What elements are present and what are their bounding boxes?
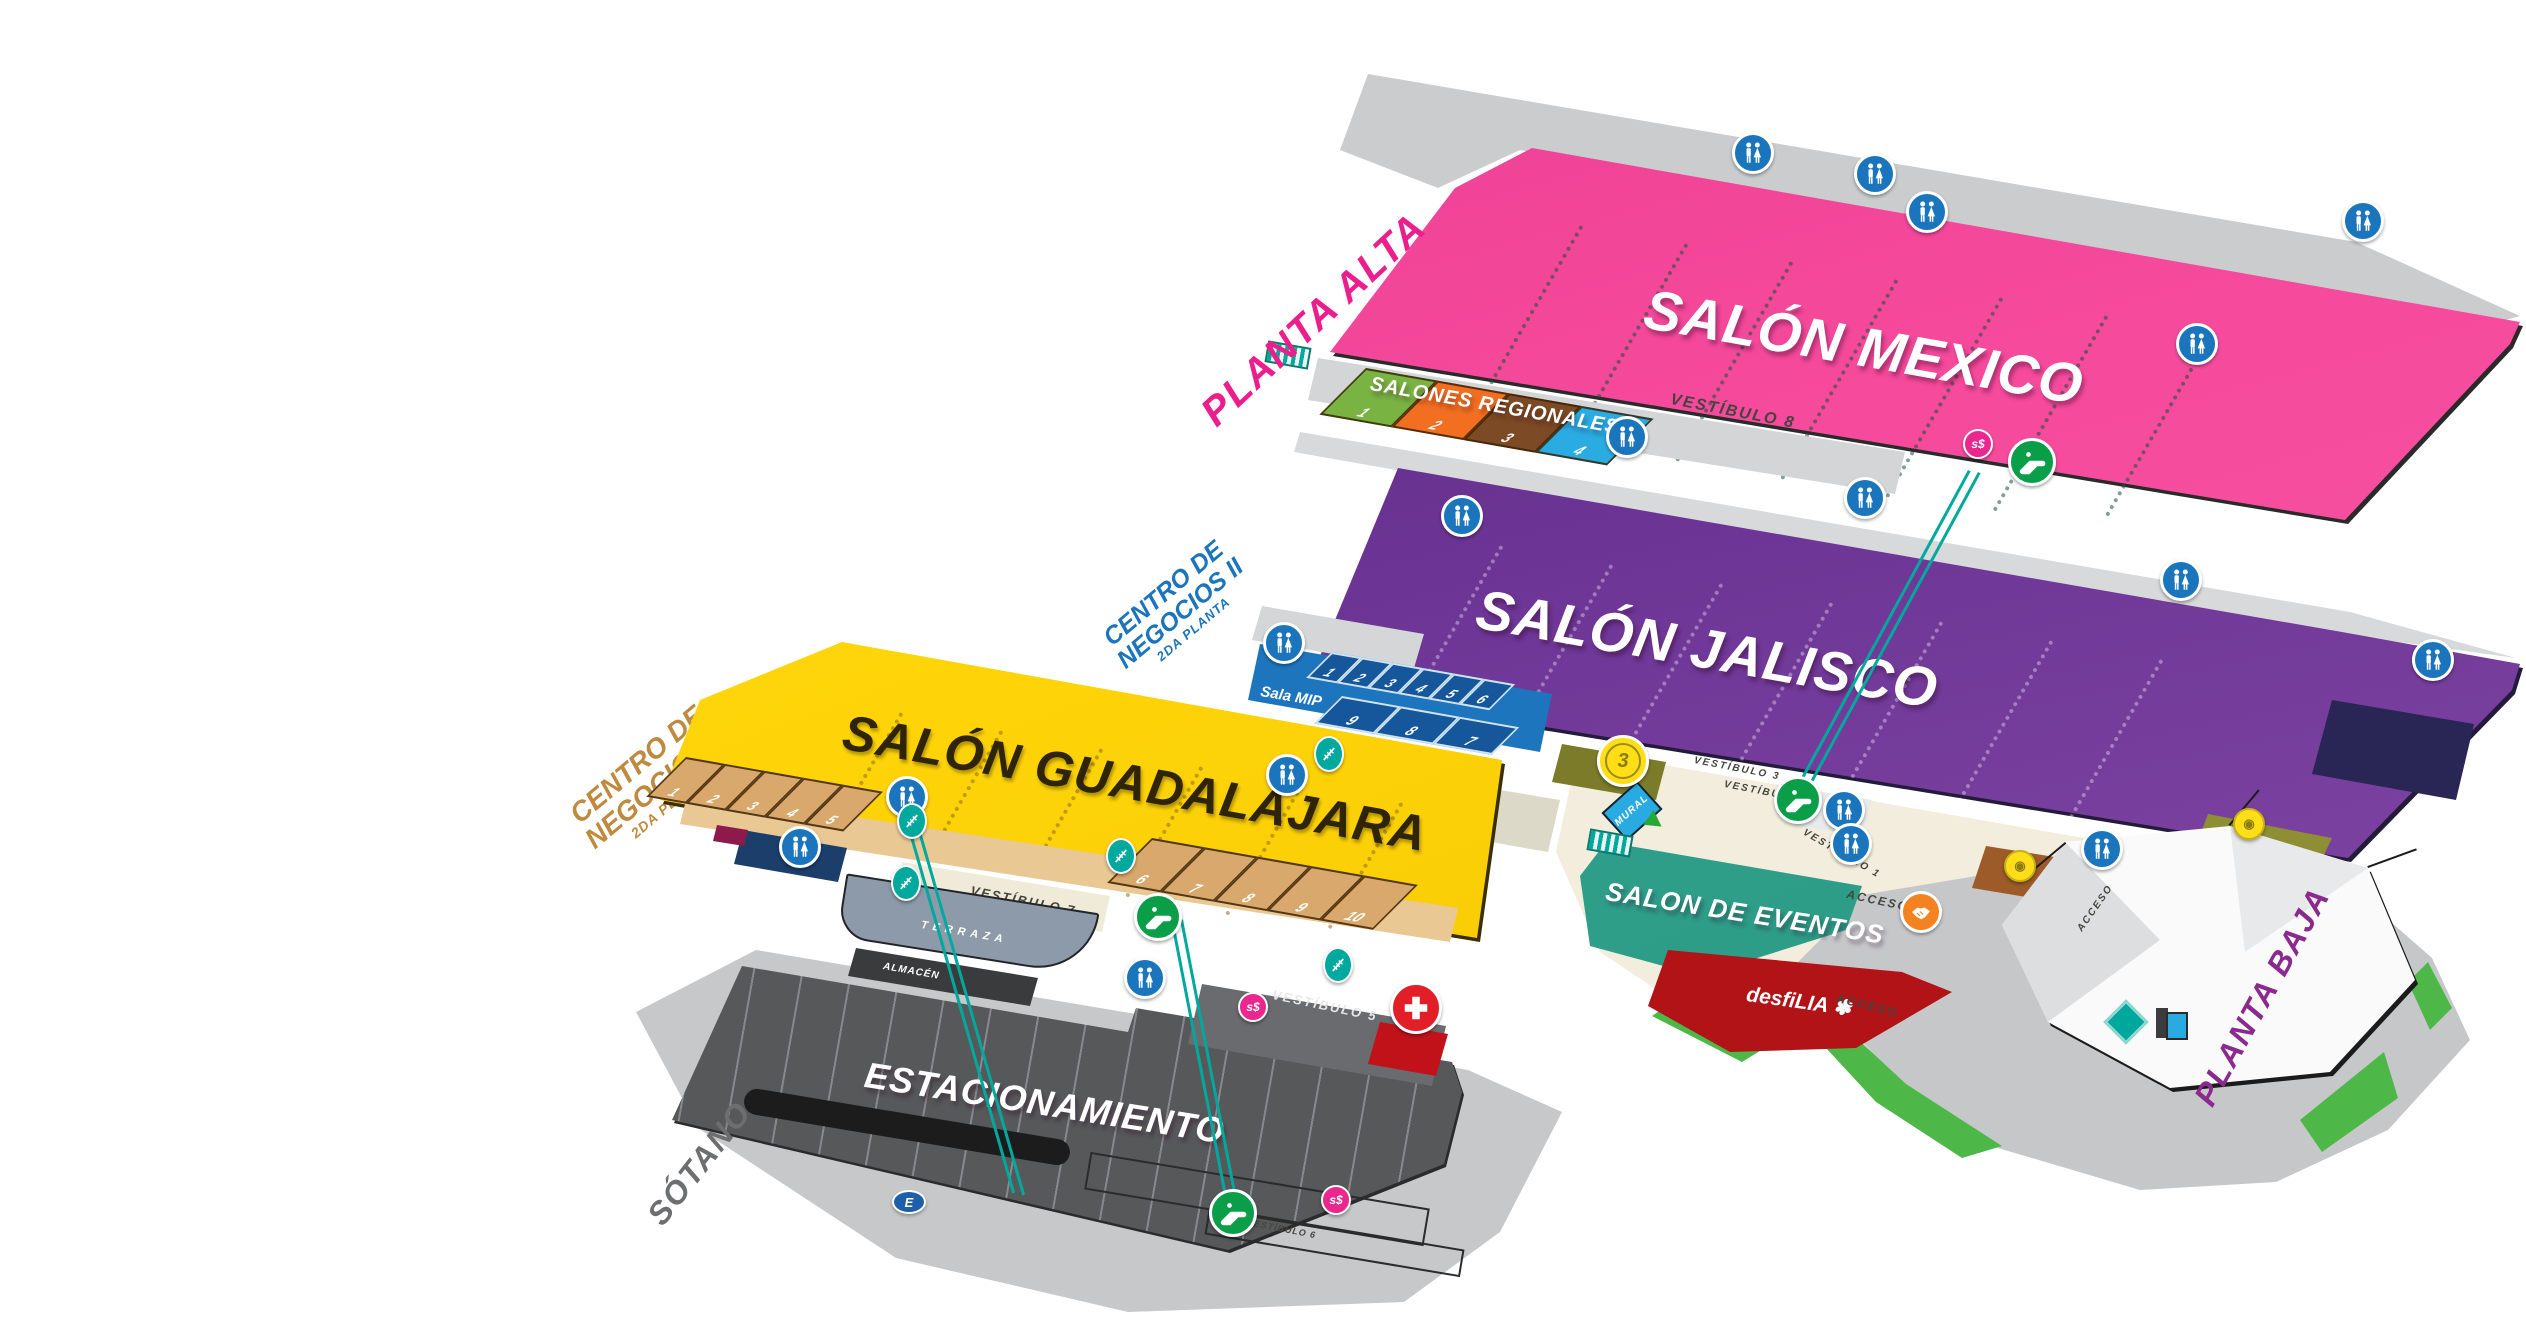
patio-khaki (0, 0, 2526, 1341)
tent-outline (3, 4, 2526, 1341)
acceso-label: ACCESO (2076, 883, 2116, 934)
terraza-area (837, 873, 1100, 976)
escalator-icon (1774, 776, 1822, 824)
restroom-icon (1441, 495, 1483, 537)
sala-mip-label: Sala MIP (1259, 684, 1323, 710)
salon-eventos-title: SALON DE EVENTOS (1604, 878, 1886, 949)
salon-jalisco-outline (3, 4, 2526, 1341)
mip-structure (0, 0, 2526, 1341)
vestibulo5-label: VESTÍBULO 5 (1271, 988, 1379, 1024)
guadalajara-navy-patch (0, 0, 2526, 1341)
guadalajara-maroon-patch (0, 0, 2526, 1341)
atm-icon: s$ (1963, 429, 1993, 459)
salon-jalisco-area (0, 0, 2526, 1341)
escalator-path (1170, 917, 1229, 1207)
stairs-strip-icon (1198, 724, 1245, 753)
plaza-walkway (0, 0, 2526, 1341)
estacionamiento-area (0, 0, 2526, 1341)
restroom-icon (1906, 191, 1948, 233)
restroom-icon (1263, 622, 1305, 664)
stairs-icon (1323, 947, 1353, 983)
almacen-band (0, 0, 2526, 1341)
escalator-icon (1209, 1189, 1257, 1237)
vestibulo8-label: VESTÍBULO 8 (1669, 392, 1797, 433)
salon-eventos-area (0, 0, 2526, 1341)
planta-baja-floor (0, 0, 2526, 1341)
centro-negocios-jalisco-label: CENTRO DE NEGOCIOS II 2DA PLANTA (1095, 533, 1257, 684)
sotano-label: SÓTANO (642, 1095, 759, 1231)
roof-corridor (0, 0, 2526, 1341)
sotano-apron (0, 0, 2526, 1341)
tent-guy-wire (2367, 848, 2417, 868)
lawn (0, 0, 2526, 1341)
vestibulo8-band (0, 0, 2526, 1341)
escalator-icon (1134, 893, 1182, 941)
salon-mexico-title: SALÓN MEXICO (1640, 280, 2088, 415)
vestibulo7-band (0, 0, 2526, 1341)
vestibulo4-band (0, 0, 2526, 1341)
salon-mexico-area (0, 0, 2526, 1341)
salon-guadalajara-area (0, 0, 2526, 1341)
fountain (2103, 999, 2148, 1044)
salon-mexico-outline (3, 4, 2526, 1341)
stairs-icon (1314, 736, 1344, 772)
restroom-icon (2412, 639, 2454, 681)
restroom-icon (2081, 828, 2123, 870)
lawn (0, 0, 2526, 1341)
seal-badge-icon: ◉ (2004, 850, 2036, 882)
restroom-icon (1830, 823, 1872, 865)
stairs-icon (891, 865, 921, 901)
estacionamiento-outline (2, 3, 2526, 1341)
parking-entrance-marker: E (892, 1190, 926, 1214)
guadalajara-corridor (0, 0, 2526, 1341)
lawn (0, 0, 2526, 1341)
restroom-icon (1266, 754, 1308, 796)
jalisco-navy-strip (0, 0, 2526, 1341)
first-aid-icon (1390, 982, 1442, 1034)
atm-icon: s$ (1321, 1185, 1351, 1215)
planta-baja-label: PLANTA BAJA (2189, 882, 2337, 1112)
guadalajara-rooms-1-5: 1 2 3 4 5 (646, 757, 883, 831)
vestibulo3-badge: 3 (1597, 735, 1649, 787)
patio-olive (0, 0, 2526, 1341)
almacen-label: ALMACÉN (882, 962, 940, 982)
vestibulo5-band (0, 0, 2526, 1341)
expo-floorplan-map: SALÓN MEXICO VESTÍBULO 8 1 2 3 4 SALONES… (0, 0, 2526, 1341)
tent-canopy (0, 0, 2526, 1341)
atm-icon: s$ (1238, 992, 1268, 1022)
restroom-icon (1732, 132, 1774, 174)
stairs-icon (897, 803, 927, 839)
tent-facet (0, 0, 2526, 1341)
patio-brown (0, 0, 2526, 1341)
restroom-icon (1606, 416, 1648, 458)
restroom-icon (2342, 200, 2384, 242)
desfilia-area (0, 0, 2526, 1341)
lawn (0, 0, 2526, 1341)
first-aid-patch (0, 0, 2526, 1341)
sala-mip-band (0, 0, 2526, 1341)
escalator-path (1800, 472, 1980, 800)
salon-guadalajara-outline (3, 4, 2526, 1341)
vestibulo3-label: VESTÍBULO 3 (1693, 756, 1781, 783)
seal-badge-icon: ◉ (2233, 808, 2265, 840)
escalator-path (1180, 919, 1239, 1209)
escalator-path (1790, 470, 1970, 798)
restroom-icon (1844, 477, 1886, 519)
tent-facet (0, 0, 2526, 1341)
pool (0, 0, 2526, 1341)
restroom-icon (779, 826, 821, 868)
restroom-icon (1854, 153, 1896, 195)
escalator-icon (2008, 438, 2056, 486)
jalisco-roof-band (0, 0, 2526, 1341)
meeting-point-icon (1900, 891, 1942, 933)
restroom-icon (1124, 957, 1166, 999)
kiosk-screen (2166, 1012, 2188, 1040)
restroom-icon (2176, 323, 2218, 365)
salon-guadalajara-title: SALÓN GUADALAJARA (839, 706, 1431, 861)
restroom-icon (2160, 559, 2202, 601)
vest2-structure (0, 0, 2526, 1341)
stairs-icon (1106, 838, 1136, 874)
